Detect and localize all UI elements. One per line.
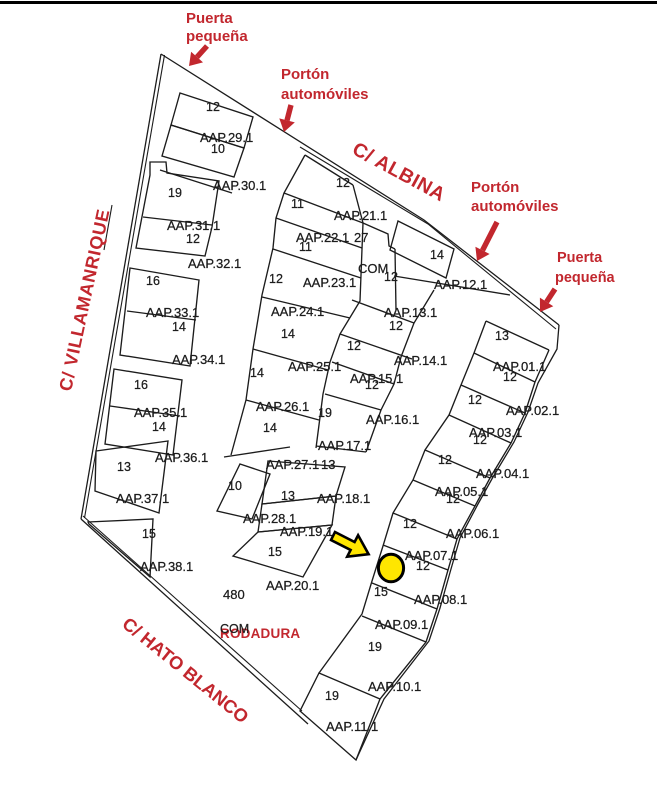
svg-text:12: 12 <box>438 453 452 467</box>
svg-text:AAP.26.1: AAP.26.1 <box>256 399 309 414</box>
svg-text:13: 13 <box>321 457 335 472</box>
svg-text:16: 16 <box>134 378 148 392</box>
svg-text:480: 480 <box>223 587 245 602</box>
svg-text:AAP.16.1: AAP.16.1 <box>366 412 419 427</box>
svg-text:14: 14 <box>152 420 166 434</box>
svg-text:12: 12 <box>336 176 350 190</box>
svg-text:AAP.02.1: AAP.02.1 <box>506 403 559 418</box>
svg-text:15: 15 <box>142 527 156 541</box>
svg-text:Portón: Portón <box>281 66 329 83</box>
svg-text:AAP.38.1: AAP.38.1 <box>140 559 193 574</box>
svg-text:pequeña: pequeña <box>186 28 248 45</box>
svg-text:AAP.20.1: AAP.20.1 <box>266 578 319 593</box>
svg-text:14: 14 <box>430 248 444 262</box>
svg-text:16: 16 <box>146 274 160 288</box>
svg-text:AAP.13.1: AAP.13.1 <box>384 305 437 320</box>
svg-text:13: 13 <box>495 329 509 343</box>
svg-text:12: 12 <box>403 517 417 531</box>
svg-text:AAP.14.1: AAP.14.1 <box>394 353 447 368</box>
svg-text:10: 10 <box>211 142 225 156</box>
svg-text:AAP.07.1: AAP.07.1 <box>405 548 458 563</box>
svg-text:15: 15 <box>268 545 282 559</box>
svg-text:19: 19 <box>168 186 182 200</box>
svg-text:12: 12 <box>389 319 403 333</box>
svg-text:12: 12 <box>384 270 398 284</box>
svg-text:AAP.09.1: AAP.09.1 <box>375 617 428 632</box>
svg-text:AAP.06.1: AAP.06.1 <box>446 526 499 541</box>
svg-text:AAP.04.1: AAP.04.1 <box>476 466 529 481</box>
svg-text:19: 19 <box>325 689 339 703</box>
svg-text:10: 10 <box>228 479 242 493</box>
svg-text:12: 12 <box>347 339 361 353</box>
svg-text:27: 27 <box>354 230 368 245</box>
svg-text:Puerta: Puerta <box>186 10 233 27</box>
svg-text:AAP.19.1: AAP.19.1 <box>280 524 333 539</box>
svg-text:AAP.08.1: AAP.08.1 <box>414 592 467 607</box>
svg-text:12: 12 <box>473 433 487 447</box>
svg-text:automóviles: automóviles <box>281 86 369 103</box>
svg-text:AAP.34.1: AAP.34.1 <box>172 352 225 367</box>
svg-text:12: 12 <box>446 492 460 506</box>
svg-text:12: 12 <box>269 272 283 286</box>
svg-text:AAP.24.1: AAP.24.1 <box>271 304 324 319</box>
svg-text:AAP.23.1: AAP.23.1 <box>303 275 356 290</box>
svg-text:AAP.18.1: AAP.18.1 <box>317 491 370 506</box>
svg-text:12: 12 <box>468 393 482 407</box>
svg-text:11: 11 <box>299 240 312 254</box>
svg-text:12: 12 <box>186 232 200 246</box>
svg-text:12: 12 <box>365 378 379 392</box>
svg-text:automóviles: automóviles <box>471 198 559 215</box>
svg-text:12: 12 <box>206 100 220 114</box>
svg-text:AAP.10.1: AAP.10.1 <box>368 679 421 694</box>
svg-text:AAP.30.1: AAP.30.1 <box>213 178 266 193</box>
svg-text:pequeña: pequeña <box>555 270 616 286</box>
svg-text:11: 11 <box>291 197 304 211</box>
svg-text:AAP.05.1: AAP.05.1 <box>435 484 488 499</box>
svg-text:12: 12 <box>503 370 517 384</box>
svg-text:AAP.21.1: AAP.21.1 <box>334 208 387 223</box>
svg-text:AAP.25.1: AAP.25.1 <box>288 359 341 374</box>
svg-text:AAP.31.1: AAP.31.1 <box>167 218 220 233</box>
svg-text:14: 14 <box>172 320 186 334</box>
svg-text:AAP.01.1: AAP.01.1 <box>493 359 546 374</box>
svg-text:Puerta: Puerta <box>557 250 603 266</box>
svg-text:Portón: Portón <box>471 179 519 196</box>
svg-text:AAP.17.1: AAP.17.1 <box>318 438 371 453</box>
svg-text:AAP.33.1: AAP.33.1 <box>146 305 199 320</box>
svg-text:14: 14 <box>281 327 295 341</box>
svg-text:AAP.36.1: AAP.36.1 <box>155 450 208 465</box>
svg-text:AAP.11.1: AAP.11.1 <box>326 719 378 734</box>
svg-text:13: 13 <box>281 489 295 503</box>
svg-text:14: 14 <box>250 366 264 380</box>
svg-text:AAP.27.1: AAP.27.1 <box>266 457 319 472</box>
svg-text:AAP.37.1: AAP.37.1 <box>116 491 169 506</box>
svg-text:AAP.35.1: AAP.35.1 <box>134 405 187 420</box>
svg-text:19: 19 <box>368 640 382 654</box>
svg-text:13: 13 <box>117 460 131 474</box>
svg-text:19: 19 <box>318 406 332 420</box>
svg-text:AAP.29.1: AAP.29.1 <box>200 130 253 145</box>
svg-text:12: 12 <box>416 559 430 573</box>
svg-text:AAP.12.1: AAP.12.1 <box>434 277 487 292</box>
svg-text:14: 14 <box>263 421 277 435</box>
svg-text:15: 15 <box>374 585 388 599</box>
svg-text:COM: COM <box>220 622 249 636</box>
svg-text:AAP.32.1: AAP.32.1 <box>188 256 241 271</box>
